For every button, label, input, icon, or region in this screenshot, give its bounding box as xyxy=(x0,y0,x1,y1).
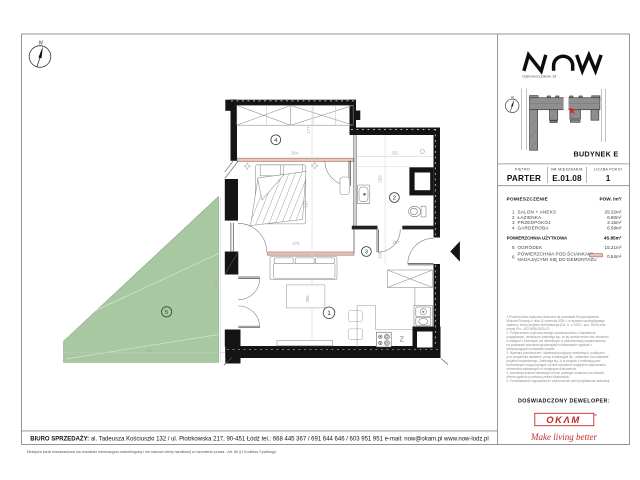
svg-text:297: 297 xyxy=(304,200,309,208)
svg-text:29.32m²: 29.32m² xyxy=(605,209,622,214)
svg-text:177: 177 xyxy=(306,126,311,134)
svg-text:PIĘTRO: PIĘTRO xyxy=(515,168,530,172)
svg-text:PRZEDPOKÓJ: PRZEDPOKÓJ xyxy=(518,219,551,225)
svg-text:ŁAZIENKA: ŁAZIENKA xyxy=(518,215,543,220)
svg-text:554: 554 xyxy=(214,280,219,288)
svg-text:N: N xyxy=(511,96,514,100)
svg-text:190: 190 xyxy=(377,251,382,259)
svg-text:OGRÓDEK: OGRÓDEK xyxy=(518,244,544,250)
svg-text:4: 4 xyxy=(512,226,515,231)
svg-text:Niniejsza karta mieszkaniowa m: Niniejsza karta mieszkaniowa ma charakte… xyxy=(27,450,277,454)
svg-text:4: 4 xyxy=(274,138,277,144)
svg-text:POWIERZCHNIA POD ŚCIANKAMI: POWIERZCHNIA POD ŚCIANKAMI xyxy=(518,250,594,257)
svg-text:6: 6 xyxy=(512,255,515,260)
svg-text:5. Przedstawione wyposażenie i: 5. Przedstawione wyposażenie i wykończen… xyxy=(507,379,611,383)
svg-text:252: 252 xyxy=(391,150,399,155)
svg-text:OKΛM: OKΛM xyxy=(546,414,581,425)
svg-text:6.58m²: 6.58m² xyxy=(607,226,622,231)
svg-text:NADAJĄCYMI SIĘ DO DEMONTAŻU: NADAJĄCYMI SIĘ DO DEMONTAŻU xyxy=(518,256,597,262)
svg-text:PARTER: PARTER xyxy=(507,174,541,183)
svg-text:NR MIESZKANIA: NR MIESZKANIA xyxy=(551,168,583,172)
svg-text:Dąbrowszczaków 18: Dąbrowszczaków 18 xyxy=(522,75,556,79)
svg-text:1: 1 xyxy=(606,174,611,183)
svg-text:2: 2 xyxy=(512,215,515,220)
svg-text:LICZBA POKOI: LICZBA POKOI xyxy=(594,168,622,172)
svg-text:POMIESZCZENIE: POMIESZCZENIE xyxy=(507,196,548,201)
svg-text:6.80m²: 6.80m² xyxy=(607,215,622,220)
svg-text:15.21m²: 15.21m² xyxy=(605,245,622,250)
svg-text:POWIERZCHNIA UŻYTKOWA: POWIERZCHNIA UŻYTKOWA xyxy=(507,235,568,240)
svg-text:DOŚWIADCZONY DEWELOPER:: DOŚWIADCZONY DEWELOPER: xyxy=(518,397,610,404)
svg-text:1: 1 xyxy=(512,209,515,214)
svg-text:GARDEROBA: GARDEROBA xyxy=(518,226,550,231)
svg-text:5: 5 xyxy=(512,245,515,250)
svg-text:0.54m²: 0.54m² xyxy=(607,254,622,259)
svg-text:5: 5 xyxy=(165,310,168,316)
svg-text:BUDYNEK E: BUDYNEK E xyxy=(573,149,618,158)
svg-text:296: 296 xyxy=(377,175,382,183)
svg-text:3: 3 xyxy=(365,250,368,256)
svg-text:306: 306 xyxy=(305,295,310,303)
svg-text:Make living better: Make living better xyxy=(530,432,597,442)
svg-text:BIURO SPRZEDAŻY: al. Tadeusza: BIURO SPRZEDAŻY: al. Tadeusza Kościuszki… xyxy=(30,435,488,442)
svg-text:45.85m²: 45.85m² xyxy=(604,235,622,240)
svg-text:Z: Z xyxy=(400,334,405,343)
svg-text:493: 493 xyxy=(145,348,153,353)
svg-text:2: 2 xyxy=(393,196,396,202)
svg-text:3.15m²: 3.15m² xyxy=(607,220,622,225)
svg-text:POW. /m²/: POW. /m²/ xyxy=(600,196,623,201)
svg-text:E.01.08: E.01.08 xyxy=(552,174,582,183)
svg-text:267: 267 xyxy=(392,240,400,245)
svg-text:378: 378 xyxy=(292,241,300,246)
svg-text:3: 3 xyxy=(512,220,515,225)
svg-text:SALON + ANEKS: SALON + ANEKS xyxy=(518,209,557,214)
svg-text:384: 384 xyxy=(291,151,299,156)
